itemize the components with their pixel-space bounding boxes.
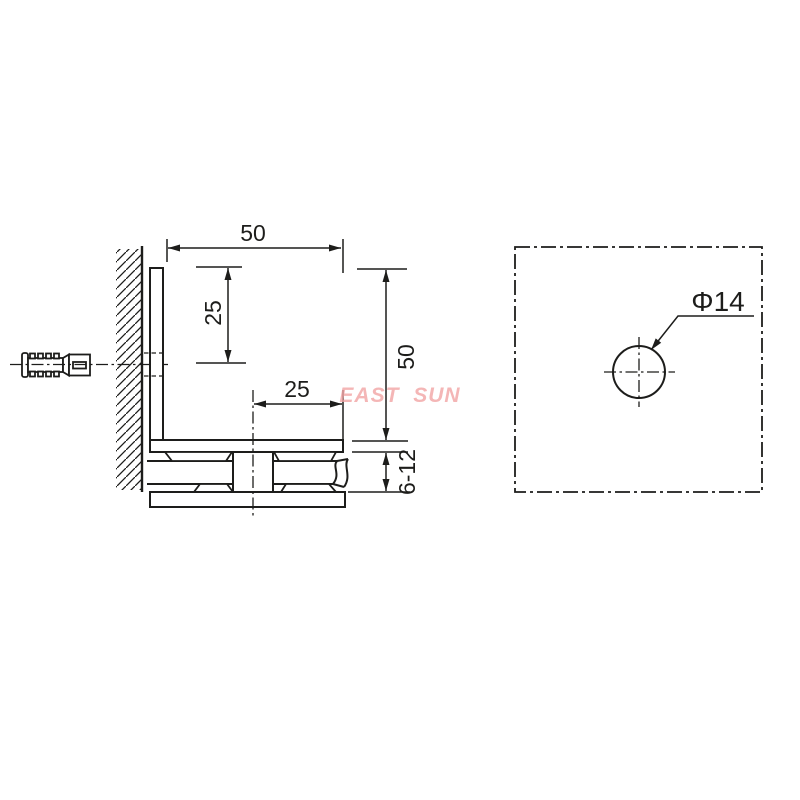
dimension-glass-thickness: 6-12 <box>348 449 420 495</box>
bracket-vertical-arm <box>150 268 163 452</box>
dim-label-hole-diameter: Φ14 <box>691 286 744 317</box>
arrowhead <box>254 401 266 408</box>
dimension-overall-height: 50 <box>352 269 419 441</box>
dimension-hole-center-from-top: 25 <box>196 267 246 363</box>
technical-drawing: 50 25 25 50 <box>0 0 800 800</box>
drawing-page: 50 25 25 50 <box>0 0 800 800</box>
glass-break-line <box>344 459 348 487</box>
watermark-text: EAST SUN <box>339 384 460 407</box>
glass-break-line <box>333 461 337 484</box>
arrowhead <box>383 270 390 282</box>
dim-label-screw-center-from-edge: 25 <box>284 376 310 402</box>
dim-label-overall-height: 50 <box>393 344 419 370</box>
dim-label-hole-center-from-top: 25 <box>200 300 226 326</box>
arrowhead <box>383 479 390 491</box>
dim-label-arm-length: 50 <box>240 220 266 246</box>
arrowhead <box>383 428 390 440</box>
arrowhead <box>225 350 232 362</box>
bracket <box>144 268 343 452</box>
dimension-arm-length: 50 <box>167 220 343 273</box>
dim-label-glass-thickness: 6-12 <box>394 449 420 495</box>
arrowhead <box>329 245 341 252</box>
clamp-bottom-plate <box>150 492 345 507</box>
arrowhead <box>383 453 390 465</box>
face-view: Φ14 <box>515 247 762 492</box>
arrowhead <box>168 245 180 252</box>
wall-hatching <box>116 249 142 490</box>
leader-line <box>651 316 754 350</box>
dimension-screw-center-from-edge: 25 <box>254 376 343 441</box>
arrowhead <box>225 268 232 280</box>
bracket-horizontal-arm <box>150 440 343 452</box>
